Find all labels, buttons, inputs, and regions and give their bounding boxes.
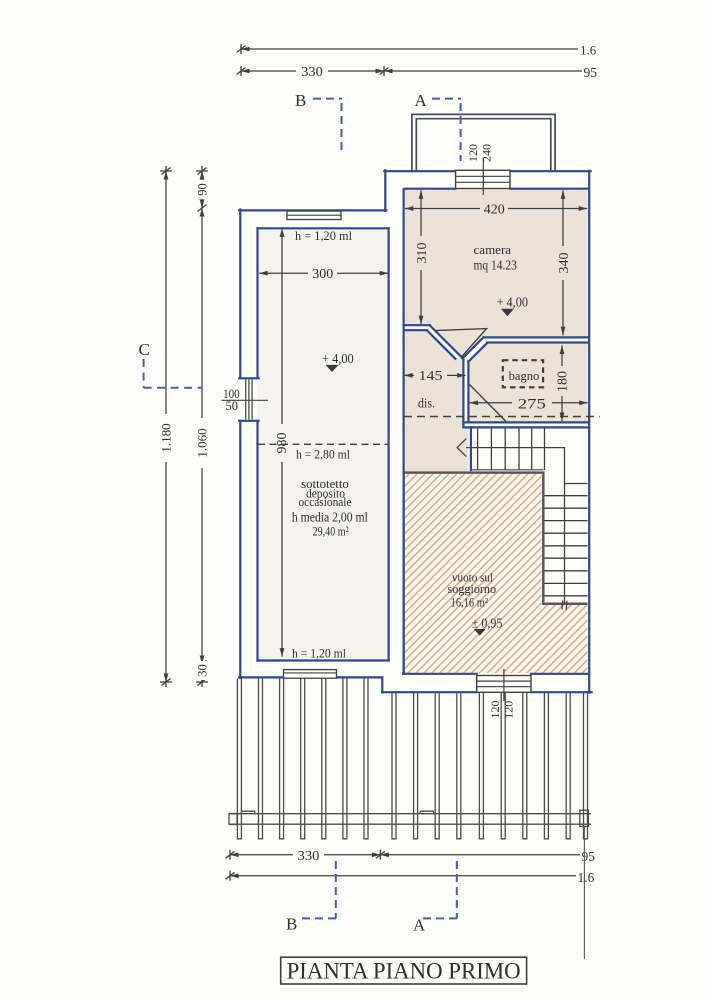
svg-text:180: 180	[556, 371, 571, 392]
svg-text:A: A	[415, 91, 428, 110]
svg-text:120: 120	[502, 701, 516, 719]
svg-text:PIANTA PIANO PRIMO: PIANTA PIANO PRIMO	[287, 958, 521, 984]
svg-text:330: 330	[298, 848, 320, 863]
svg-text:1.060: 1.060	[195, 428, 210, 457]
svg-text:120: 120	[488, 701, 502, 719]
svg-text:340: 340	[557, 253, 572, 274]
svg-text:h = 1,20 ml: h = 1,20 ml	[295, 228, 352, 243]
svg-text:bagno: bagno	[509, 368, 540, 383]
svg-text:330: 330	[301, 64, 323, 79]
svg-text:A: A	[413, 916, 426, 935]
svg-text:camera: camera	[474, 242, 512, 257]
svg-text:16,16 m²: 16,16 m²	[451, 595, 489, 609]
svg-text:h = 1,20 ml: h = 1,20 ml	[292, 646, 346, 661]
svg-text:B: B	[286, 915, 297, 934]
svg-text:95: 95	[584, 65, 598, 80]
svg-text:1.180: 1.180	[159, 423, 174, 452]
svg-text:C: C	[139, 340, 150, 359]
svg-text:+ 4,00: + 4,00	[322, 352, 354, 367]
svg-text:29,40 m²: 29,40 m²	[313, 523, 349, 538]
svg-text:30: 30	[195, 664, 209, 677]
svg-text:275: 275	[518, 396, 546, 412]
svg-text:1.6: 1.6	[578, 870, 595, 885]
svg-text:50: 50	[226, 399, 239, 413]
svg-text:300: 300	[312, 267, 333, 282]
svg-text:310: 310	[415, 243, 430, 264]
svg-text:1.6: 1.6	[580, 43, 597, 58]
svg-text:occasionale: occasionale	[299, 495, 352, 509]
svg-text:+ 4,00: + 4,00	[497, 296, 528, 311]
svg-text:120: 120	[466, 144, 480, 162]
svg-text:soggiorno: soggiorno	[448, 581, 497, 596]
svg-text:90: 90	[195, 183, 209, 196]
svg-text:980: 980	[275, 433, 290, 454]
svg-text:95: 95	[582, 849, 596, 864]
svg-text:B: B	[295, 91, 306, 110]
svg-text:420: 420	[484, 202, 505, 217]
svg-text:dis.: dis.	[418, 396, 435, 411]
svg-text:240: 240	[479, 144, 493, 162]
svg-text:mq 14.23: mq 14.23	[473, 257, 517, 272]
svg-text:145: 145	[419, 369, 443, 384]
svg-text:h = 2,80 ml: h = 2,80 ml	[296, 447, 350, 462]
